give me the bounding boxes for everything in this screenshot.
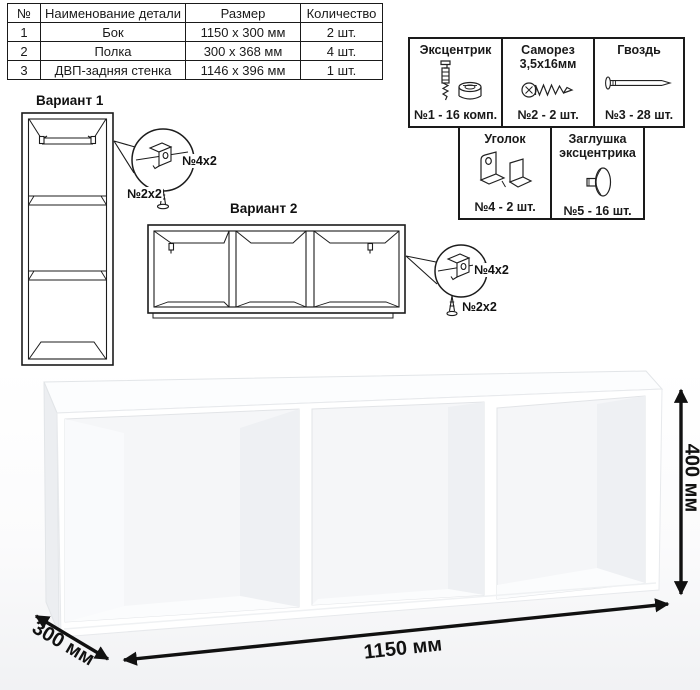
part-name: Бок bbox=[41, 23, 186, 42]
hardware-count: №3 - 28 шт. bbox=[605, 108, 673, 126]
hardware-item-angle-bracket: Уголок №4 - 2 шт. bbox=[458, 126, 552, 220]
part-qty: 4 шт. bbox=[301, 42, 383, 61]
height-dimension-label: 400 мм bbox=[680, 444, 700, 513]
shelf-compartment-2 bbox=[312, 402, 484, 605]
eccentric-cam-icon bbox=[425, 59, 487, 107]
table-row: 3 ДВП-задняя стенка 1146 х 396 мм 1 шт. bbox=[8, 61, 383, 80]
part-qty: 2 шт. bbox=[301, 23, 383, 42]
screw-icon bbox=[520, 74, 576, 106]
part-num: 2 bbox=[8, 42, 41, 61]
hardware-count: №5 - 16 шт. bbox=[563, 204, 631, 222]
part-num: 3 bbox=[8, 61, 41, 80]
parts-table: № Наименование детали Размер Количество … bbox=[7, 3, 383, 80]
hardware-count: №2 - 2 шт. bbox=[517, 108, 578, 126]
variant2-bracket-label: №4х2 bbox=[473, 263, 510, 277]
variant1-drawing bbox=[22, 113, 113, 365]
hardware-title: Саморез 3,5х16мм bbox=[503, 39, 593, 71]
callout-screw-icon bbox=[447, 296, 457, 316]
variant1-screw-label: №2х2 bbox=[126, 187, 163, 201]
part-num: 1 bbox=[8, 23, 41, 42]
table-row: 2 Полка 300 х 368 мм 4 шт. bbox=[8, 42, 383, 61]
part-size: 300 х 368 мм bbox=[186, 42, 301, 61]
hardware-item-nail: Гвоздь №3 - 28 шт. bbox=[593, 37, 685, 128]
shelf-compartment-3 bbox=[497, 396, 645, 599]
hardware-count: №1 - 16 комп. bbox=[414, 108, 497, 126]
hardware-title: Уголок bbox=[484, 128, 525, 146]
col-header-name: Наименование детали bbox=[41, 4, 186, 23]
col-header-num: № bbox=[8, 4, 41, 23]
part-size: 1150 х 300 мм bbox=[186, 23, 301, 42]
hardware-title: Гвоздь bbox=[617, 39, 661, 57]
variant2-screw-label: №2х2 bbox=[461, 300, 498, 314]
angle-bracket-icon bbox=[473, 150, 537, 196]
col-header-size: Размер bbox=[186, 4, 301, 23]
part-qty: 1 шт. bbox=[301, 61, 383, 80]
hardware-item-cam-cap: Заглушка эксцентрика №5 - 16 шт. bbox=[550, 126, 645, 220]
part-size: 1146 х 396 мм bbox=[186, 61, 301, 80]
nail-icon bbox=[602, 71, 676, 95]
hardware-item-eccentric: Эксцентрик №1 - 16 комп. bbox=[408, 37, 503, 128]
hardware-title: Эксцентрик bbox=[420, 39, 492, 57]
shelf-3d-drawing bbox=[0, 365, 700, 690]
col-header-qty: Количество bbox=[301, 4, 383, 23]
hardware-title: Заглушка эксцентрика bbox=[552, 128, 643, 160]
cam-cap-icon bbox=[575, 160, 621, 204]
shelf-compartment-1 bbox=[65, 409, 299, 622]
hardware-item-screw: Саморез 3,5х16мм №2 - 2 шт. bbox=[501, 37, 595, 128]
part-name: ДВП-задняя стенка bbox=[41, 61, 186, 80]
hardware-count: №4 - 2 шт. bbox=[474, 200, 535, 218]
variant1-bracket-label: №4х2 bbox=[181, 154, 218, 168]
table-row: 1 Бок 1150 х 300 мм 2 шт. bbox=[8, 23, 383, 42]
variant2-drawing bbox=[148, 225, 405, 318]
parts-table-header-row: № Наименование детали Размер Количество bbox=[8, 4, 383, 23]
variant1-title: Вариант 1 bbox=[36, 93, 103, 108]
assembly-instruction-sheet: № Наименование детали Размер Количество … bbox=[0, 0, 700, 690]
part-name: Полка bbox=[41, 42, 186, 61]
variant2-title: Вариант 2 bbox=[230, 201, 297, 216]
